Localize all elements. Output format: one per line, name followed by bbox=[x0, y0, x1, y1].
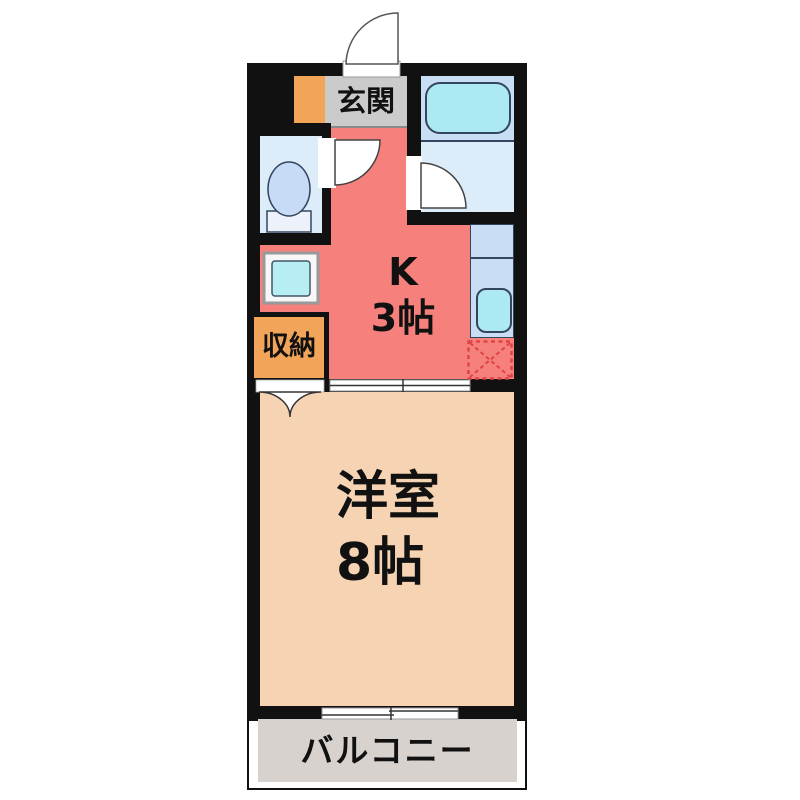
bathroom-wall-left bbox=[407, 63, 421, 225]
entrance-area: 玄関 bbox=[325, 76, 407, 128]
kitchen-counter-lower bbox=[470, 258, 514, 338]
room-balcony-wall bbox=[247, 706, 527, 719]
entrance-door-arc-icon bbox=[346, 13, 398, 64]
main-room-label-line1: 洋室 bbox=[336, 464, 516, 530]
storage-closet: 収納 bbox=[249, 312, 329, 383]
kitchen-label-line2: 3帖 bbox=[340, 295, 466, 341]
floor-plan: バルコニー 玄関 収納 bbox=[0, 0, 800, 800]
kitchen-counter-upper bbox=[470, 224, 514, 258]
storage-label: 収納 bbox=[262, 331, 316, 363]
kitchen-label: K 3帖 bbox=[340, 249, 466, 342]
balcony-floor: バルコニー bbox=[258, 719, 517, 782]
shoe-cabinet bbox=[294, 76, 325, 123]
entrance-label: 玄関 bbox=[337, 84, 395, 119]
kitchen-label-line1: K bbox=[340, 249, 466, 295]
balcony-label: バルコニー bbox=[300, 731, 474, 771]
toilet-room bbox=[260, 136, 322, 233]
bathroom-floor-zone bbox=[421, 140, 514, 212]
bathroom-tub-zone bbox=[421, 76, 514, 140]
main-room-label-line2: 8帖 bbox=[336, 530, 516, 596]
main-room-label: 洋室 8帖 bbox=[336, 464, 516, 596]
